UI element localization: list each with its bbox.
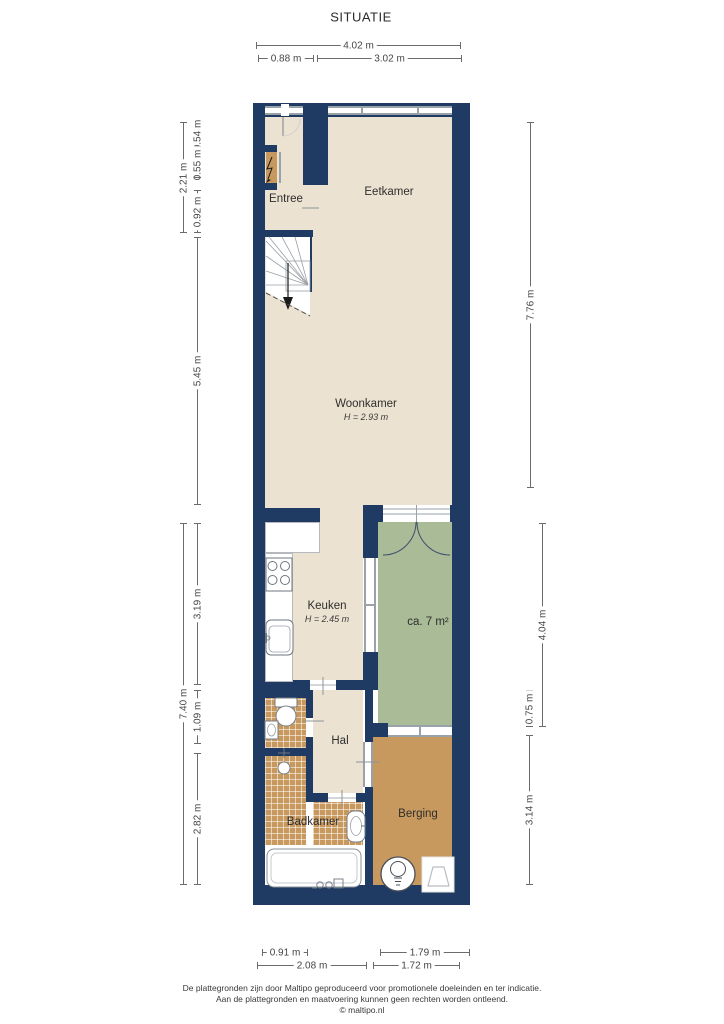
window-entree-left xyxy=(265,106,281,115)
wall-bottom xyxy=(253,885,470,905)
dim-right-terrace-inner: 0.75 m xyxy=(529,690,530,727)
room-label-woonkamer: Woonkamer xyxy=(335,398,397,410)
dim-top-right: 3.02 m xyxy=(317,58,462,59)
dim-right-upper: 7.76 m xyxy=(530,122,531,488)
room-label-terrace: ca. 7 m² xyxy=(407,616,449,628)
footer-disclaimer-2: Aan de plattegronden en maatvoering kunn… xyxy=(216,994,508,1004)
kitchen-counter-left xyxy=(265,553,293,682)
wall-hal-berging xyxy=(365,690,373,888)
dim-left-s1: 0.54 m xyxy=(197,122,198,147)
dim-left-s3: 0.92 m xyxy=(197,190,198,233)
bath-zone xyxy=(265,845,363,888)
floor-toilet xyxy=(265,698,306,748)
meter-cupboard-door xyxy=(279,152,281,183)
dim-left-hal: 1.09 m xyxy=(197,690,198,744)
dim-bottom-berg-inner: 1.79 m xyxy=(380,952,470,953)
room-height-keuken: H = 2.45 m xyxy=(305,614,349,624)
room-label-hal: Hal xyxy=(331,735,348,747)
window-mullion-4 xyxy=(419,725,421,737)
floorplan-canvas: SITUATIE xyxy=(0,0,724,1024)
window-eetkamer xyxy=(328,106,452,115)
window-mullion-2 xyxy=(417,106,419,115)
footer-disclaimer-1: De plattegronden zijn door Maltipo gepro… xyxy=(183,983,542,993)
window-entree-right xyxy=(289,106,303,115)
dim-left-total-lower: 7.40 m xyxy=(183,523,184,885)
wall-right xyxy=(452,103,470,905)
wall-entree-pier xyxy=(303,115,328,185)
wall-terrace-berging-left xyxy=(373,723,388,737)
room-label-eetkamer: Eetkamer xyxy=(364,186,413,198)
dim-right-berging: 3.14 m xyxy=(529,735,530,885)
kitchen-counter-top xyxy=(265,522,320,553)
dim-top-total: 4.02 m xyxy=(256,45,461,46)
dim-bottom-bad-inner: 0.91 m xyxy=(262,952,308,953)
page-title: SITUATIE xyxy=(330,10,392,25)
wall-toilet-right-lower xyxy=(306,737,313,802)
wall-toilet-bottom xyxy=(262,748,313,756)
wall-terrace-top-right xyxy=(450,505,470,522)
dim-left-badkamer: 2.82 m xyxy=(197,753,198,885)
meter-cupboard xyxy=(266,152,277,183)
door-gap-hal-badkamer xyxy=(328,793,356,802)
wall-entree-bottom xyxy=(257,230,313,237)
room-label-badkamer: Badkamer xyxy=(287,816,339,828)
window-hal-berging xyxy=(363,742,373,787)
dim-top-left: 0.88 m xyxy=(258,58,314,59)
door-gap-keuken-hal xyxy=(310,680,336,690)
wall-toilet-top xyxy=(265,690,306,698)
wall-keuken-terrace-upper xyxy=(363,522,378,558)
door-gap-toilet xyxy=(306,718,313,737)
wall-keuken-terrace-lower xyxy=(363,652,378,680)
room-label-berging: Berging xyxy=(398,808,438,820)
dim-right-terrace: 4.04 m xyxy=(542,523,543,727)
wall-meterkast-top xyxy=(265,145,277,152)
window-mullion-3 xyxy=(364,604,376,606)
floor-woonkamer-eetkamer xyxy=(265,115,452,510)
front-door-gap xyxy=(281,104,289,116)
dim-left-entree: 2.21 m xyxy=(183,122,184,233)
wall-left xyxy=(253,103,265,905)
dim-left-woonkamer: 5.45 m xyxy=(197,237,198,505)
window-mullion-1 xyxy=(361,106,363,115)
wall-terrace-top-left xyxy=(363,505,383,522)
dim-left-s2: 0.55 m xyxy=(197,152,198,178)
room-label-entree: Entree xyxy=(269,193,303,205)
wall-keuken-top xyxy=(262,508,320,522)
room-height-woonkamer: H = 2.93 m xyxy=(344,412,388,422)
wall-stairs-edge xyxy=(310,237,312,292)
dim-bottom-bad: 2.08 m xyxy=(257,965,367,966)
wall-toilet-right-upper xyxy=(306,690,313,718)
dim-bottom-berg: 1.72 m xyxy=(373,965,460,966)
wall-meterkast-bottom xyxy=(265,183,277,190)
dim-left-keuken: 3.19 m xyxy=(197,523,198,685)
room-label-keuken: Keuken xyxy=(307,600,346,612)
wall-keuken-bottom-right xyxy=(336,680,378,690)
footer-copyright: © maltipo.nl xyxy=(339,1005,384,1015)
